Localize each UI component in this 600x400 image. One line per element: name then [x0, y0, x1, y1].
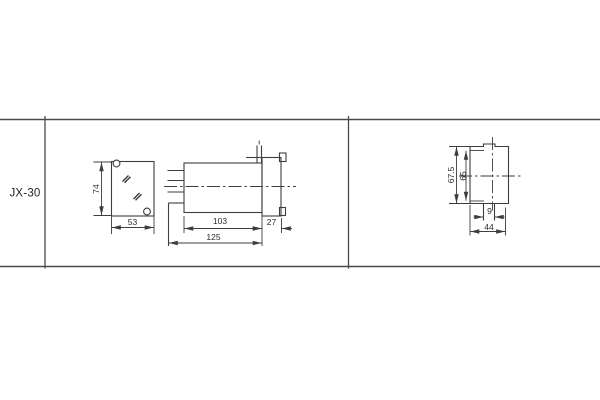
dim-label-slot-width: 9 [487, 206, 492, 215]
mounting-screw-top [113, 160, 120, 167]
dimension-drawing-page: JX-30 74 53 103 27 125 67.5 65 9 44 [0, 0, 600, 400]
dim-label-end-overall-height: 67.5 [447, 167, 456, 184]
side-view [164, 141, 296, 247]
glass-hatch-marks [123, 176, 142, 201]
end-dim-lines [457, 147, 506, 236]
dim-label-overall-depth: 125 [206, 233, 220, 242]
terminal-stubs [168, 171, 185, 193]
flange-clip-bottom [280, 208, 286, 216]
dim-label-end-inner-height: 65 [458, 171, 467, 180]
end-view [449, 137, 522, 236]
front-view [94, 160, 155, 234]
dim-label-front-height: 74 [92, 184, 101, 193]
dim-label-end-width: 44 [484, 223, 493, 232]
mounting-screw-bottom [144, 208, 151, 215]
model-label: JX-30 [9, 188, 40, 200]
technical-drawing [0, 0, 600, 400]
dim-label-body-depth: 103 [213, 217, 227, 226]
front-dim-lines [94, 162, 155, 234]
dim-label-front-width: 53 [128, 218, 137, 227]
dim-label-flange-depth: 27 [267, 218, 276, 227]
